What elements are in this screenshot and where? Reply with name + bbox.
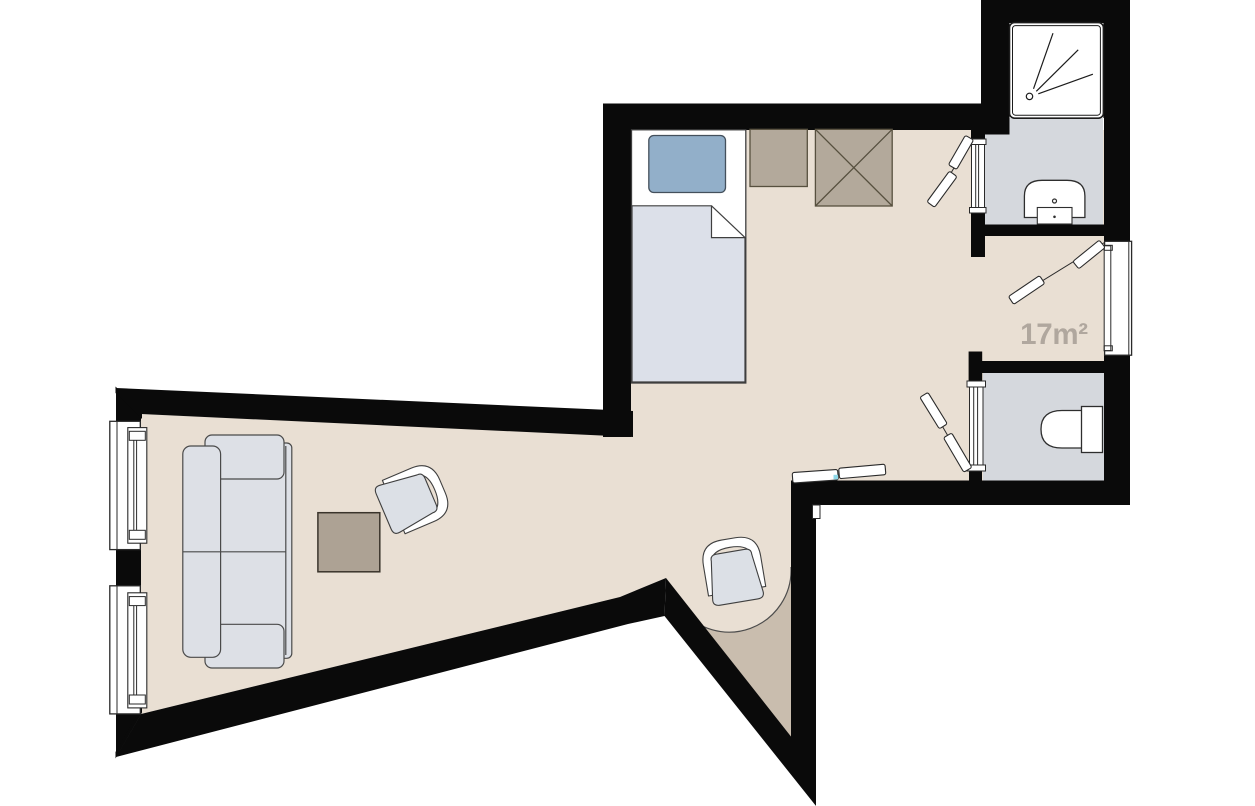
svg-text:17m²: 17m² [1020, 318, 1088, 351]
